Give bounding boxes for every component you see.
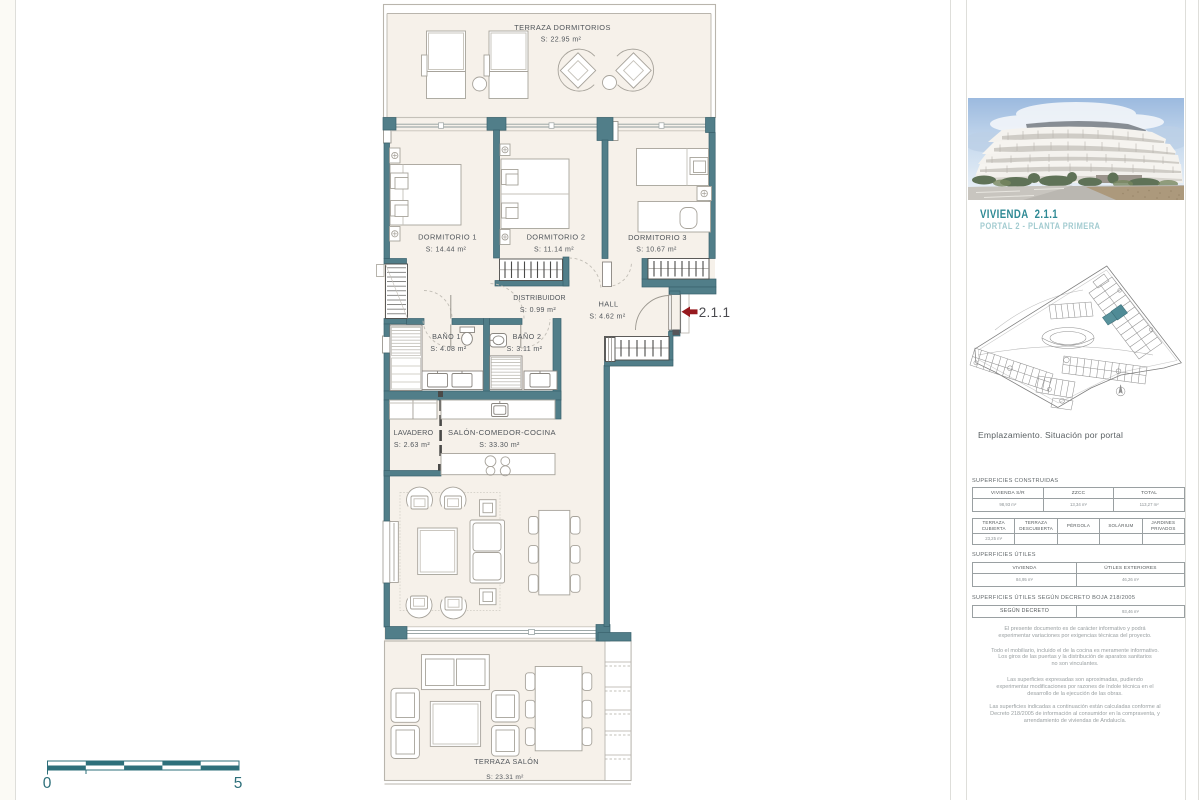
svg-text:TERRAZA SALÓN: TERRAZA SALÓN (474, 757, 539, 766)
svg-text:S: 0.99 m²: S: 0.99 m² (520, 307, 557, 314)
svg-text:S: 14.44 m²: S: 14.44 m² (426, 247, 467, 254)
svg-text:S: 3.11 m²: S: 3.11 m² (507, 346, 543, 353)
svg-text:S: 4.62 m²: S: 4.62 m² (589, 314, 626, 321)
svg-text:2.1.1: 2.1.1 (699, 305, 731, 320)
svg-text:S: 23.31 m²: S: 23.31 m² (486, 774, 524, 781)
svg-text:S: 11.14 m²: S: 11.14 m² (534, 247, 574, 254)
svg-text:S: 33.30 m²: S: 33.30 m² (479, 442, 520, 449)
svg-text:BAÑO 2: BAÑO 2 (513, 332, 542, 341)
svg-text:S: 22.95 m²: S: 22.95 m² (541, 37, 582, 44)
svg-text:DORMITORIO 2: DORMITORIO 2 (527, 233, 586, 242)
svg-text:DORMITORIO 3: DORMITORIO 3 (628, 233, 687, 242)
svg-text:HALL: HALL (598, 300, 618, 309)
svg-text:DORMITORIO 1: DORMITORIO 1 (418, 233, 477, 242)
svg-text:0: 0 (43, 775, 52, 792)
svg-text:BAÑO 1: BAÑO 1 (432, 332, 461, 341)
svg-text:S: 4.08 m²: S: 4.08 m² (430, 346, 467, 353)
svg-text:LAVADERO: LAVADERO (394, 428, 434, 437)
svg-text:S: 2.63 m²: S: 2.63 m² (394, 442, 431, 449)
svg-text:TERRAZA DORMITORIOS: TERRAZA DORMITORIOS (514, 23, 611, 32)
svg-text:S: 10.67 m²: S: 10.67 m² (636, 247, 677, 254)
svg-text:DISTRIBUIDOR: DISTRIBUIDOR (513, 295, 566, 302)
svg-text:5: 5 (234, 775, 243, 792)
svg-text:SALÓN-COMEDOR-COCINA: SALÓN-COMEDOR-COCINA (448, 428, 557, 437)
